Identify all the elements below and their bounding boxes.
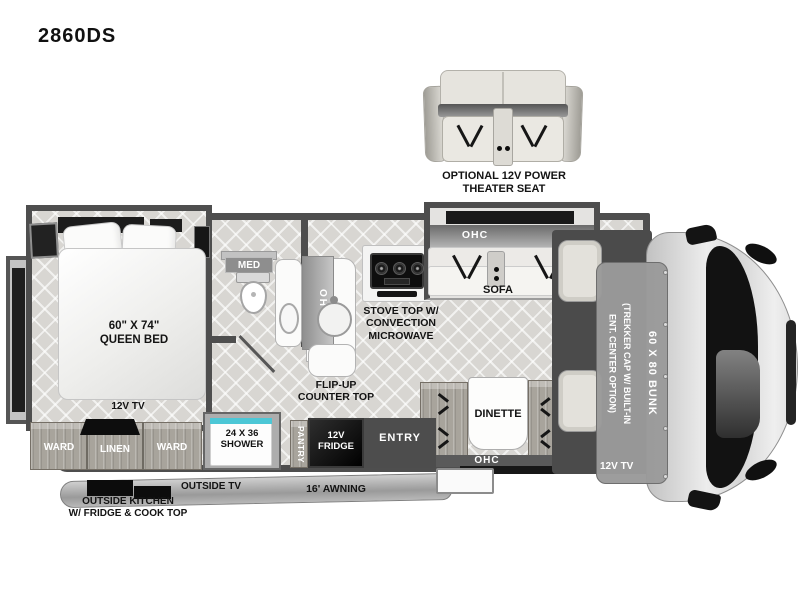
bedroom-rear-window (12, 268, 25, 412)
cabinet-tv (80, 419, 140, 435)
bench-left-stitch-1 (429, 393, 457, 415)
sofa-cupholder-1 (494, 267, 499, 272)
cab-tv-label: 12V TV (600, 461, 646, 473)
kitchen-sink (317, 302, 352, 337)
shower-label: 24 X 36 SHOWER (206, 428, 278, 450)
ward-right-label: WARD (144, 442, 200, 454)
bunk-rivet-2 (663, 322, 668, 327)
bath-sink (279, 303, 299, 334)
entry-label: ENTRY (366, 432, 434, 445)
cab-hood-band (716, 350, 760, 438)
theater-cupholder-2 (505, 146, 510, 151)
bedroom-window-left (29, 222, 59, 258)
theater-console (493, 108, 513, 166)
flip-up-counter (308, 344, 356, 377)
kitchen-faucet (330, 296, 338, 304)
outside-tv-label: OUTSIDE TV (173, 481, 249, 493)
fridge-label: 12V FRIDGE (310, 430, 362, 452)
sofa-label: SOFA (462, 284, 534, 297)
cab-front-grille (786, 320, 796, 425)
stove-label: STOVE TOP W/ CONVECTION MICROWAVE (352, 305, 450, 342)
bunk-label: 60 X 80 BUNK (640, 268, 658, 478)
sofa-cupholder-2 (494, 276, 499, 281)
entry-step (436, 468, 494, 494)
med-cabinet: MED (225, 257, 273, 273)
bunk-rivet-3 (663, 374, 668, 379)
bath-wall-stub (206, 336, 236, 343)
theater-seat-back-divider (502, 72, 504, 108)
stove-burner-3 (411, 262, 424, 275)
theater-stitch-right (516, 124, 552, 148)
theater-cupholder-1 (497, 146, 502, 151)
stove-burner-1 (375, 262, 388, 275)
outside-tv-box (87, 480, 133, 496)
theater-seat-label: OPTIONAL 12V POWER THEATER SEAT (414, 170, 594, 196)
pantry-label: PANTRY (293, 422, 306, 466)
bunk-rivet-1 (663, 270, 668, 275)
floorplan-page: 60" X 74" QUEEN BED 12V TV MED OHC STOVE… (0, 0, 800, 600)
dinette-label: DINETTE (460, 408, 536, 421)
page-title: 2860DS (38, 25, 116, 48)
linen-label: LINEN (88, 444, 142, 456)
stove-grate (384, 278, 410, 285)
shower-glass (210, 418, 272, 424)
sofa-window (446, 211, 574, 224)
bedroom-tv-label: 12V TV (99, 401, 157, 413)
stove-drawer (377, 291, 417, 297)
bunk-rivet-5 (663, 474, 668, 479)
toilet-flush-dot (251, 292, 256, 297)
ward-left-label: WARD (32, 442, 86, 454)
sofa-ohc-label: OHC (440, 229, 510, 241)
outside-kitchen-label: OUTSIDE KITCHEN W/ FRIDGE & COOK TOP (52, 496, 204, 520)
stove-burner-2 (393, 262, 406, 275)
awning-label: 16' AWNING (298, 483, 374, 495)
trekker-cap-label: (TREKKER CAP W/ BUILT-IN ENT. CENTER OPT… (604, 268, 634, 460)
flip-up-label: FLIP-UP COUNTER TOP (292, 379, 380, 404)
sofa-stitch-left (447, 254, 487, 280)
theater-stitch-left (452, 124, 488, 148)
bunk-rivet-4 (663, 426, 668, 431)
queen-bed-label: 60" X 74" QUEEN BED (90, 320, 178, 347)
